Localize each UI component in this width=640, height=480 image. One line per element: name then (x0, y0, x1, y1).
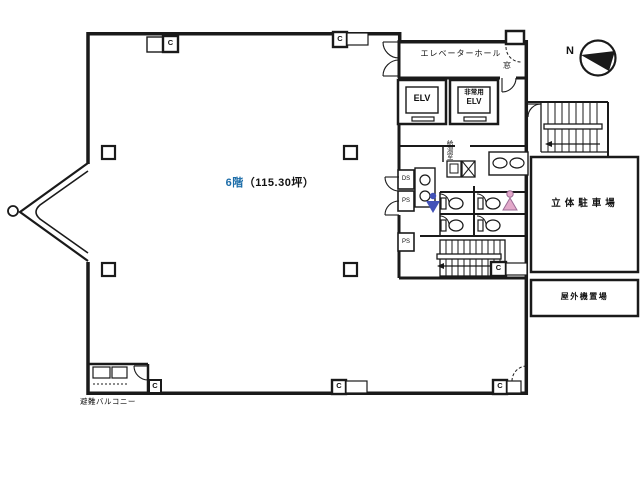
ac-unit-label-1: C (163, 39, 178, 47)
outdoor-equipment-label: 屋外機置場 (531, 293, 638, 302)
emergency-elv-label-line1: 非常用 (458, 89, 490, 96)
elv-label: ELV (406, 94, 438, 104)
bay-window (8, 163, 88, 261)
elevator-hall-walls (398, 40, 527, 78)
ac-unit-label-3: C (491, 264, 506, 272)
plan-drawing (0, 0, 640, 480)
duct-space-label: DS (398, 176, 414, 183)
balcony-room (88, 364, 148, 393)
floor-number: 6階 (226, 177, 244, 189)
external-staircase (528, 102, 608, 157)
floor-area-label: 6階（115.30坪） (195, 177, 345, 189)
ac-unit-label-5: C (493, 382, 507, 390)
kitchenette-label: 給湯室 (445, 140, 452, 160)
emergency-elv-label-line2: ELV (458, 98, 490, 107)
floor-area: （115.30坪） (244, 177, 315, 189)
parking-label: 立体駐車場 (533, 199, 637, 209)
pipe-space-label-1: PS (398, 198, 414, 205)
columns (102, 146, 357, 276)
elevator-hall-label: エレベーターホール (400, 50, 522, 59)
pipe-space-label-2: PS (398, 239, 414, 246)
north-label: N (566, 45, 574, 57)
parking-outline (531, 157, 638, 272)
compass-icon (581, 41, 616, 76)
window-label: 窓 (503, 62, 511, 71)
ac-unit-label-4: C (332, 382, 346, 390)
ac-unit-label-6: C (149, 382, 161, 390)
evacuation-balcony-label: 避難バルコニー (80, 398, 136, 406)
female-icon (503, 191, 517, 210)
ac-unit-label-2: C (333, 35, 347, 43)
floor-plan: エレベーターホール ELV 非常用 ELV 窓 給湯室 6階（115.30坪） … (0, 0, 640, 480)
